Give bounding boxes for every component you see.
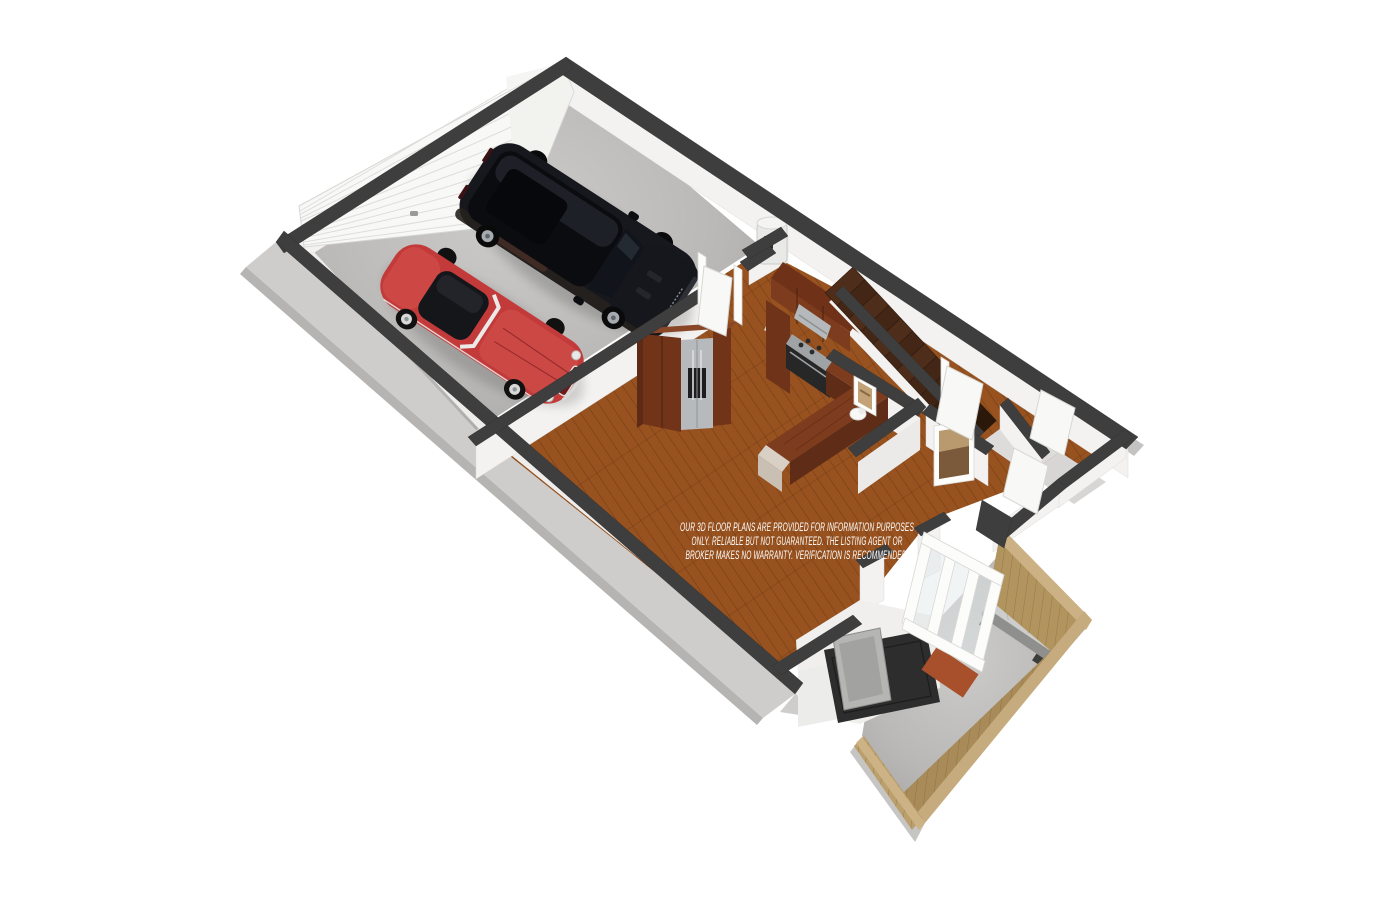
floor-plan-image: OUR 3D FLOOR PLANS ARE PROVIDED FOR INFO… bbox=[0, 0, 1400, 900]
garage-hall-door bbox=[698, 266, 732, 336]
floor-plan-svg: OUR 3D FLOOR PLANS ARE PROVIDED FOR INFO… bbox=[0, 0, 1400, 900]
disclaimer-line-1: OUR 3D FLOOR PLANS ARE PROVIDED FOR INFO… bbox=[680, 520, 914, 534]
disclaimer-line-3: BROKER MAKES NO WARRANTY. VERIFICATION I… bbox=[686, 548, 909, 562]
garage-door-handle bbox=[410, 211, 418, 216]
disclaimer: OUR 3D FLOOR PLANS ARE PROVIDED FOR INFO… bbox=[680, 520, 914, 562]
disclaimer-line-2: ONLY. RELIABLE BUT NOT GUARANTEED. THE L… bbox=[692, 534, 903, 548]
pantry-right-cabinet bbox=[713, 328, 731, 426]
